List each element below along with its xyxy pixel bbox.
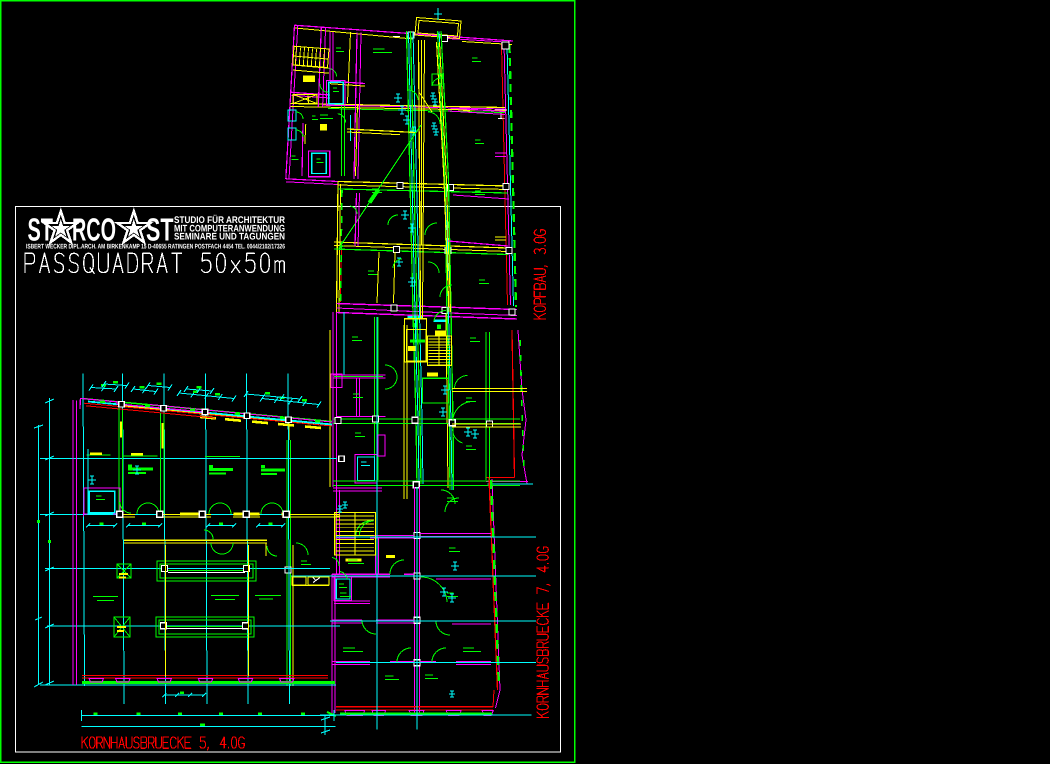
svg-text:ST: ST	[146, 211, 174, 247]
svg-text:SEMINARE UND TAGUNGEN: SEMINARE UND TAGUNGEN	[174, 231, 285, 242]
svg-text:ISBERT WECKER DIPL.ARCH. AM B: ISBERT WECKER DIPL.ARCH. AM BIRKENKAMP 1…	[26, 244, 285, 251]
svg-text:ST: ST	[28, 211, 54, 247]
svg-text:RCO: RCO	[72, 211, 116, 247]
